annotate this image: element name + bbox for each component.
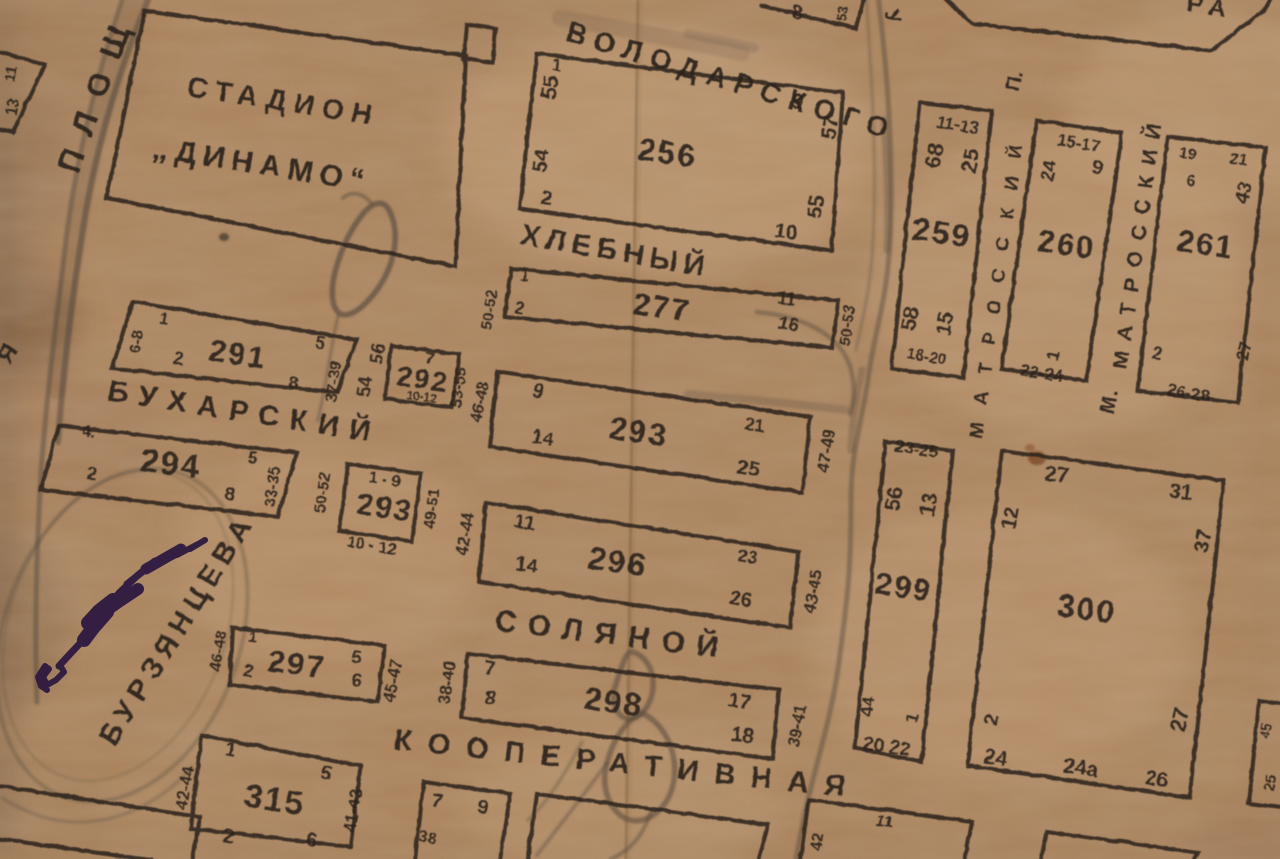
svg-text:10: 10 bbox=[772, 218, 798, 244]
svg-text:26: 26 bbox=[1143, 765, 1169, 791]
svg-text:55: 55 bbox=[536, 74, 562, 101]
svg-text:297: 297 bbox=[265, 643, 327, 685]
svg-text:21: 21 bbox=[743, 413, 766, 436]
svg-text:294: 294 bbox=[138, 440, 203, 484]
svg-text:25: 25 bbox=[735, 455, 760, 480]
svg-text:23: 23 bbox=[736, 545, 759, 568]
svg-text:16: 16 bbox=[777, 312, 800, 335]
svg-text:25: 25 bbox=[955, 146, 984, 174]
svg-text:24: 24 bbox=[1036, 157, 1060, 182]
svg-text:11: 11 bbox=[775, 287, 797, 309]
svg-text:14: 14 bbox=[513, 552, 539, 577]
svg-text:68: 68 bbox=[919, 141, 948, 169]
svg-text:54: 54 bbox=[527, 147, 553, 174]
svg-text:12: 12 bbox=[997, 504, 1023, 530]
svg-text:26: 26 bbox=[727, 586, 752, 611]
svg-text:54: 54 bbox=[353, 374, 377, 398]
svg-text:11: 11 bbox=[874, 812, 893, 831]
svg-text:55: 55 bbox=[802, 193, 828, 220]
svg-text:298: 298 bbox=[581, 680, 644, 723]
svg-text:45: 45 bbox=[1256, 721, 1274, 739]
svg-text:42: 42 bbox=[808, 831, 828, 852]
svg-text:М.: М. bbox=[1095, 388, 1122, 415]
svg-text:24: 24 bbox=[982, 744, 1009, 770]
svg-text:18: 18 bbox=[729, 723, 754, 748]
svg-text:27: 27 bbox=[1232, 339, 1254, 361]
svg-text:17: 17 bbox=[726, 689, 751, 714]
svg-text:13: 13 bbox=[915, 491, 942, 518]
svg-text:44: 44 bbox=[855, 694, 878, 717]
svg-text:56: 56 bbox=[880, 485, 907, 512]
svg-text:15: 15 bbox=[931, 309, 958, 336]
svg-text:37: 37 bbox=[1189, 527, 1216, 554]
svg-text:31: 31 bbox=[1167, 478, 1194, 504]
svg-text:25: 25 bbox=[1260, 773, 1278, 791]
svg-text:13: 13 bbox=[3, 96, 23, 115]
svg-text:24a: 24a bbox=[1061, 754, 1099, 782]
svg-text:38: 38 bbox=[417, 828, 437, 848]
svg-text:53: 53 bbox=[832, 4, 850, 22]
svg-text:27: 27 bbox=[1042, 459, 1070, 487]
svg-text:11: 11 bbox=[512, 509, 536, 534]
svg-text:21: 21 bbox=[1228, 150, 1248, 170]
svg-text:43: 43 bbox=[1231, 180, 1255, 204]
svg-text:27: 27 bbox=[1166, 706, 1193, 733]
svg-text:11: 11 bbox=[1, 64, 20, 83]
svg-text:6-8: 6-8 bbox=[126, 328, 146, 353]
svg-text:57: 57 bbox=[816, 114, 842, 140]
svg-text:14: 14 bbox=[529, 425, 555, 450]
svg-text:56: 56 bbox=[366, 341, 390, 365]
svg-text:4.: 4. bbox=[80, 422, 96, 441]
svg-text:58: 58 bbox=[896, 304, 923, 331]
svg-text:19: 19 bbox=[1177, 144, 1197, 164]
